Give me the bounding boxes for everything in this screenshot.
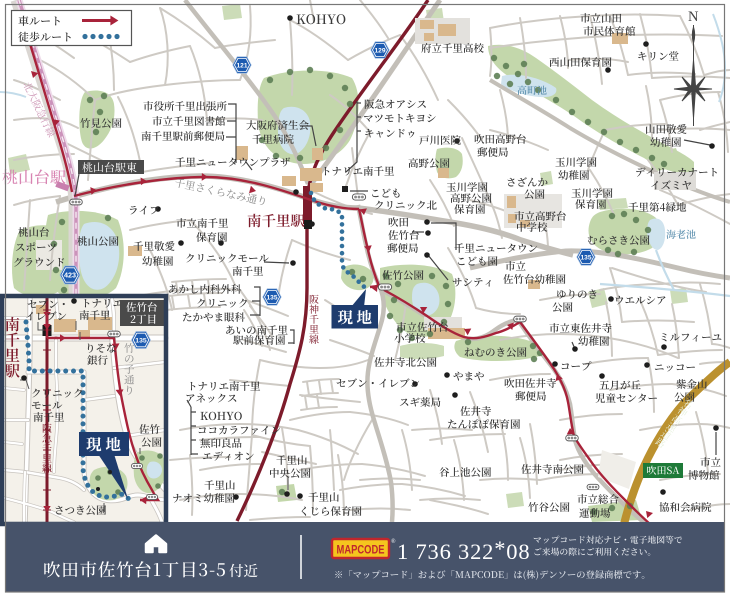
svg-text:1 736 322*08: 1 736 322*08: [397, 536, 530, 564]
svg-text:®: ®: [391, 538, 396, 545]
svg-text:MAPCODE: MAPCODE: [337, 545, 385, 557]
svg-text:121: 121: [236, 62, 247, 69]
svg-text:423: 423: [64, 271, 76, 280]
svg-text:135: 135: [135, 338, 147, 345]
svg-text:129: 129: [374, 47, 385, 54]
svg-text:135: 135: [580, 254, 591, 261]
svg-text:135: 135: [266, 294, 277, 301]
svg-text:N: N: [688, 9, 699, 25]
